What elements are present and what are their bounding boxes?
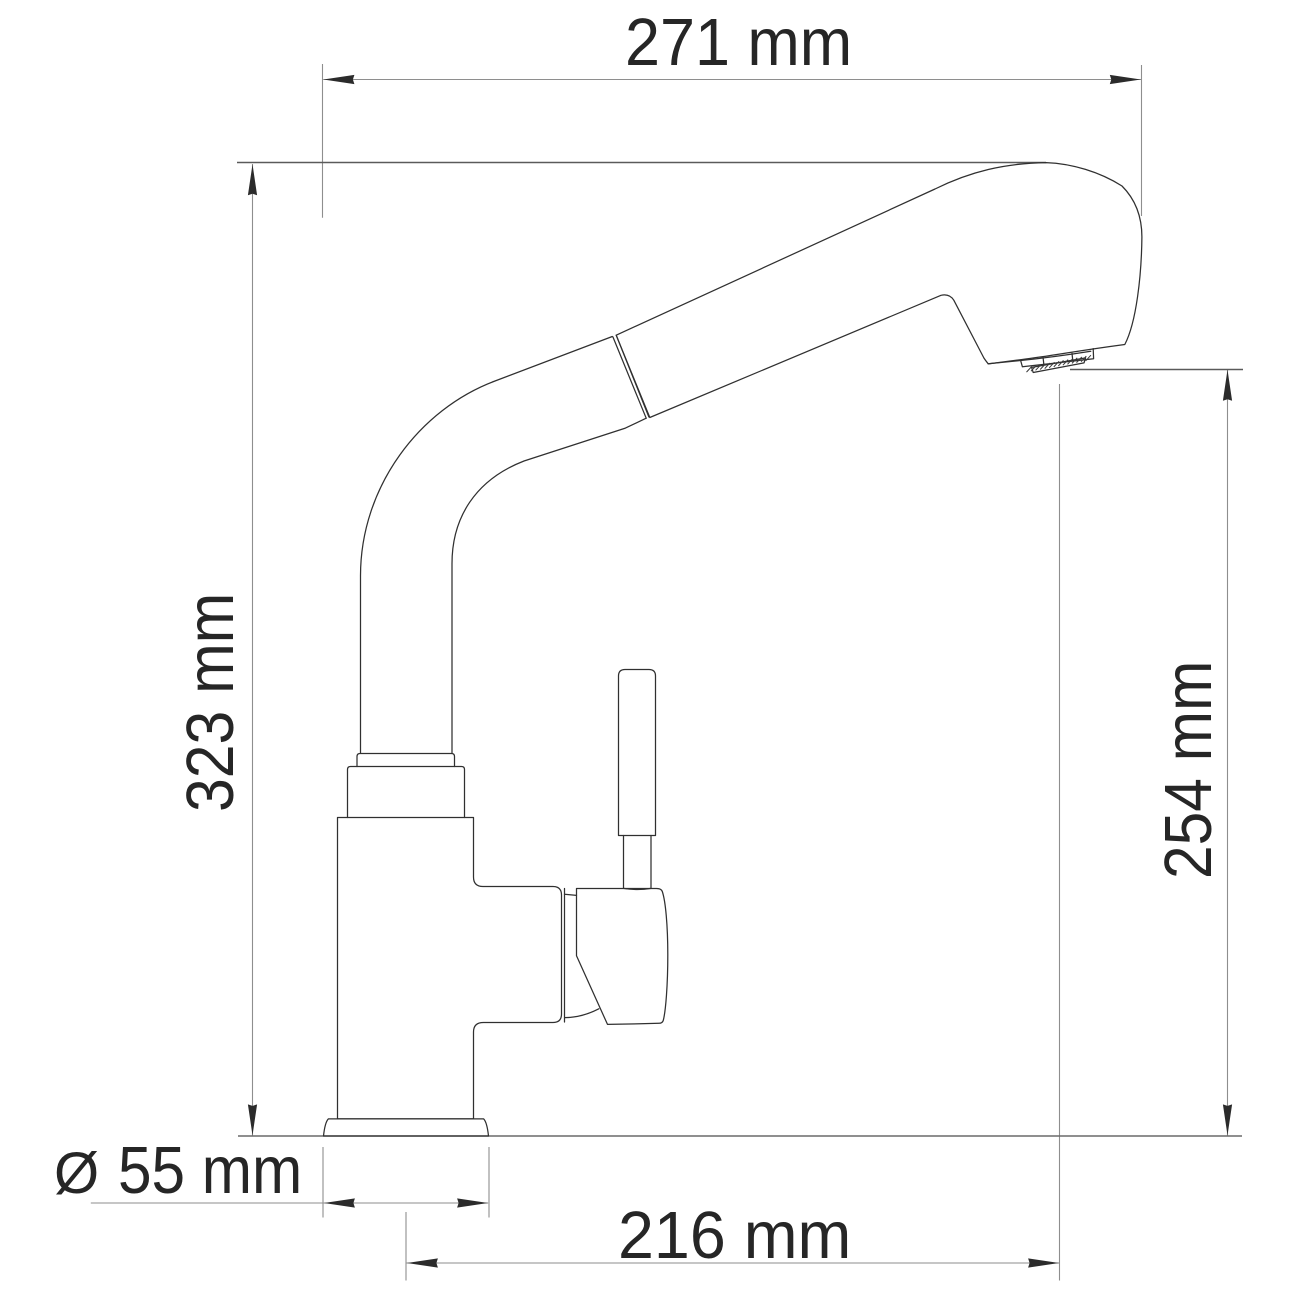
svg-text:55 mm: 55 mm bbox=[118, 1132, 302, 1208]
svg-text:216 mm: 216 mm bbox=[618, 1197, 851, 1272]
svg-text:271 mm: 271 mm bbox=[625, 4, 852, 79]
svg-text:323 mm: 323 mm bbox=[172, 593, 247, 812]
svg-text:254 mm: 254 mm bbox=[1150, 661, 1226, 879]
svg-text:Ø: Ø bbox=[54, 1141, 99, 1206]
